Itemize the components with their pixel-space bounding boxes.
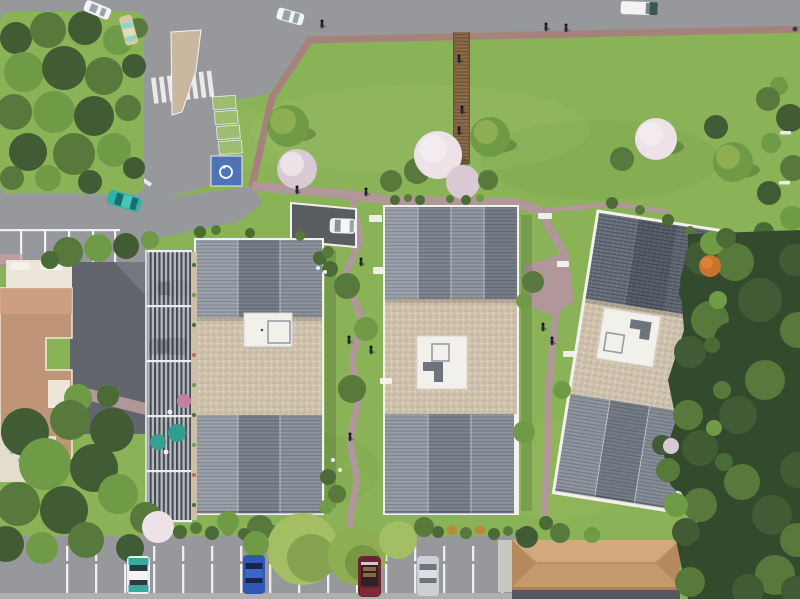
- rooftop-cabin-west: [244, 313, 292, 349]
- vehicle-car-blue-south: [243, 555, 265, 594]
- rooftop-cabin-center: [417, 336, 467, 389]
- existing-building-south: [498, 540, 680, 599]
- vehicle-car-ramp: [329, 218, 356, 234]
- site-plan-canvas: [0, 0, 800, 599]
- rooftop-cabin-east: [596, 308, 660, 367]
- residence-center-building: [383, 205, 532, 515]
- street-furniture-bin: [793, 27, 798, 32]
- terrace-planter-strip: [191, 252, 197, 520]
- accessible-parking-bay: [211, 156, 242, 186]
- carports: [145, 250, 192, 522]
- vehicle-car-silver-south: [417, 556, 439, 596]
- vehicle-van-top-right: [621, 1, 658, 15]
- vehicle-car-teal-south: [127, 556, 150, 594]
- aerial-site-render: Bird's-eye 3D rendering of a residential…: [0, 0, 800, 599]
- vehicle-car-red-convertible-south: [358, 556, 381, 597]
- residence-west-building: [194, 238, 336, 515]
- orange-tree-highlight: [701, 257, 713, 269]
